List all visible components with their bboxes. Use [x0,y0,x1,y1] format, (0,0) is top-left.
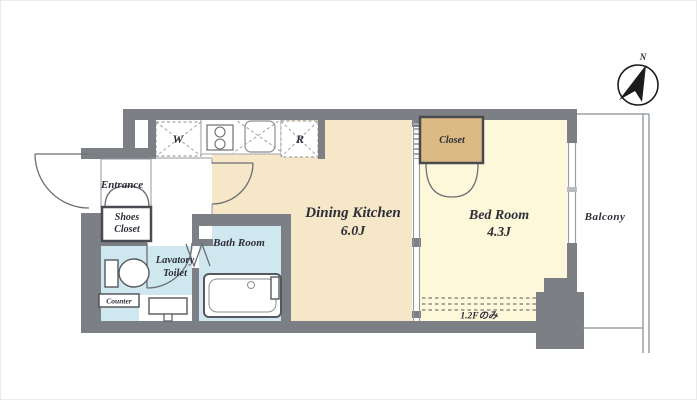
structural-column [544,278,567,293]
bathtub-icon [204,274,281,317]
shoes-closet-label-2: Closet [114,224,141,235]
toilet-icon [105,259,149,287]
compass-icon: N [618,52,658,105]
floor-plan-image: W R [0,0,697,400]
balcony-outline [577,114,649,353]
closet-label: Closet [439,135,466,146]
shoes-closet-label-1: Shoes [115,212,140,223]
refrigerator-space: R [281,121,318,157]
counter-box: Counter [99,294,139,307]
refrigerator-symbol: R [295,132,304,146]
dining-kitchen-size: 6.0J [341,224,367,239]
lavatory-label-1: Lavatory [155,255,195,266]
bed-room-label: Bed Room [468,208,529,223]
shoes-closet: Shoes Closet [102,207,151,241]
floor-note: 1.2Fのみ [460,311,498,322]
balcony-label: Balcony [584,211,626,223]
counter-label: Counter [106,297,132,306]
structural-column [536,292,584,349]
lavatory-label-2: Toilet [163,268,188,279]
entrance-door [35,154,89,208]
entrance-label: Entrance [100,179,143,191]
sliding-partition [414,120,420,321]
bed-room-size: 4.3J [486,224,512,239]
kitchen-counter [201,116,283,154]
dining-kitchen-label: Dining Kitchen [304,205,400,221]
washer-symbol: W [173,132,185,146]
bedroom-window [567,143,577,243]
compass-north-label: N [639,52,647,62]
sink-icon [245,121,275,152]
bath-room-label: Bath Room [212,237,265,249]
floor-plan-svg: W R [1,1,697,401]
washer-space: W [156,122,201,156]
bedroom-closet: Closet [420,117,483,163]
